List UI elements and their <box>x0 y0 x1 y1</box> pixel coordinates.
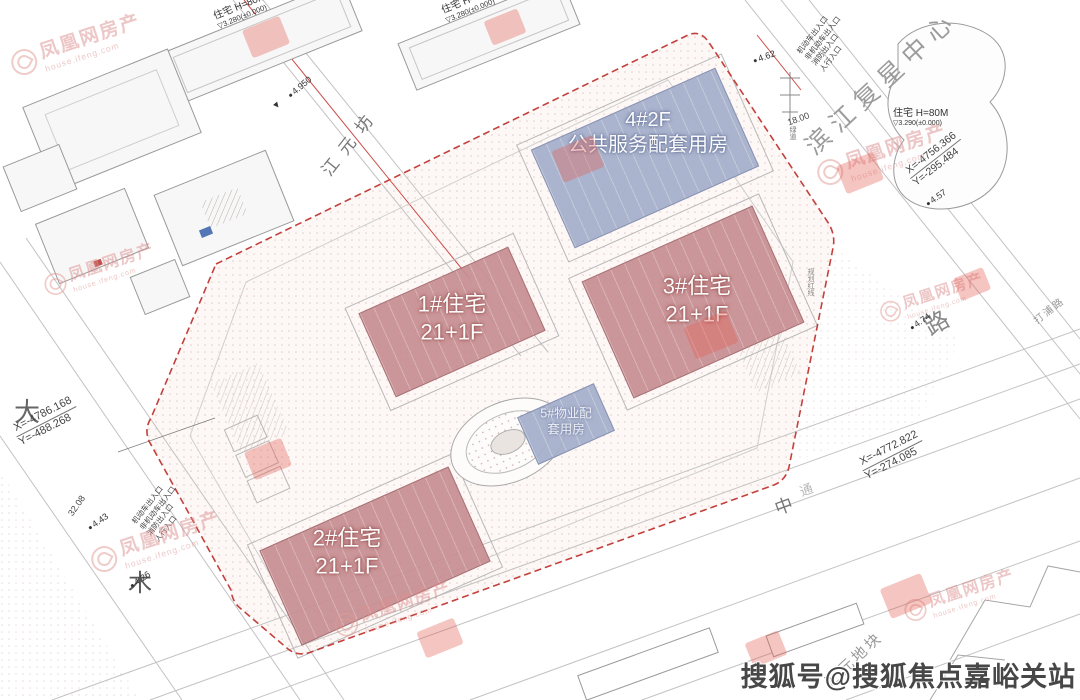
red-line-note: 规划红线 <box>806 268 814 296</box>
building-1-label: 1#住宅 21+1F <box>418 291 486 346</box>
building-5-label: 5#物业配 套用房 <box>540 406 591 437</box>
building-2-label: 2#住宅 21+1F <box>313 525 381 580</box>
sohu-watermark: 搜狐号@搜狐焦点嘉峪关站 <box>741 655 1076 694</box>
greenway-note: 绿道 <box>788 126 796 140</box>
site-plan-drawing: 4#2F 公共服务配套用房 1#住宅 21+1F 3#住宅 21+1F 2#住宅… <box>0 0 1080 700</box>
